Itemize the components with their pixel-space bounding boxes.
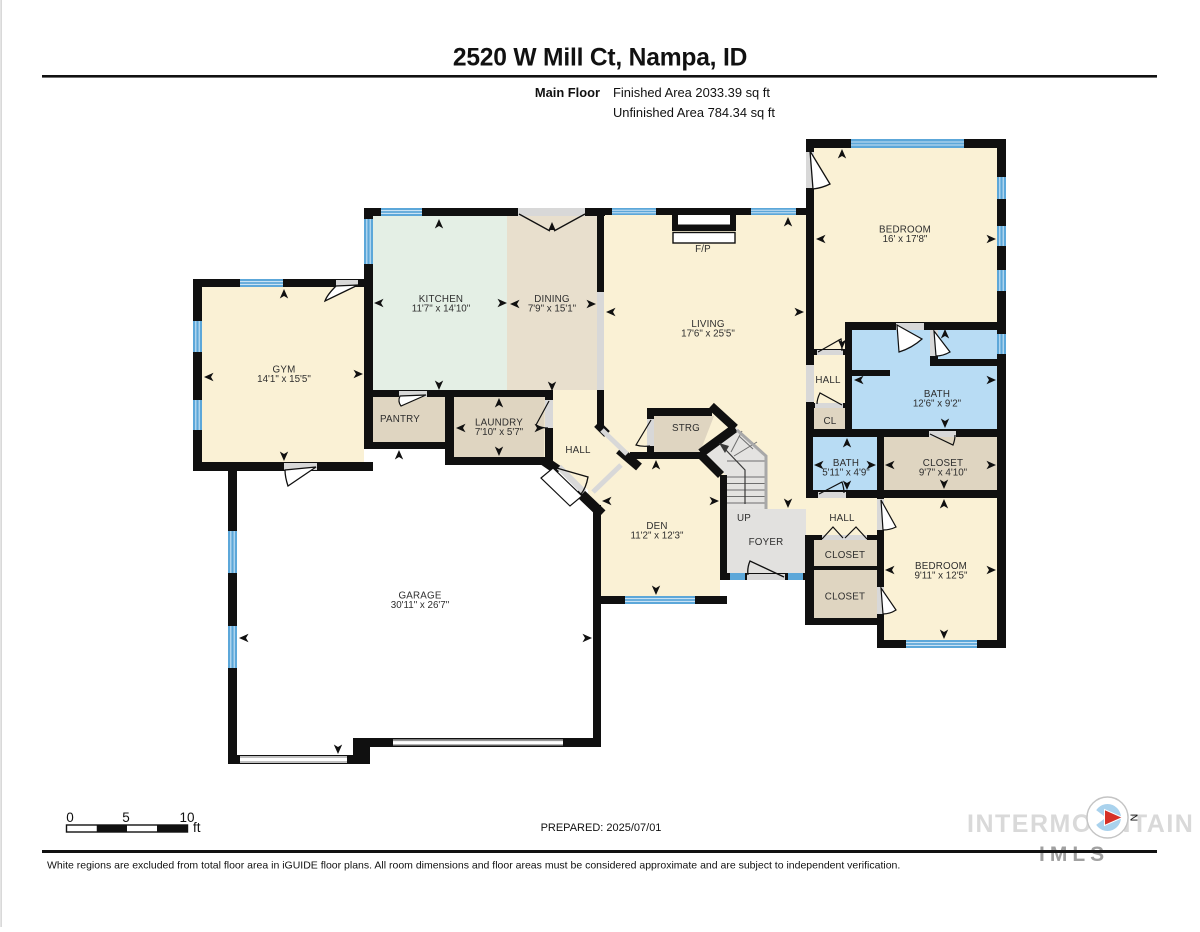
svg-text:Unfinished Area 784.34 sq ft: Unfinished Area 784.34 sq ft xyxy=(613,105,775,120)
svg-text:HALL: HALL xyxy=(829,513,855,524)
svg-text:2520 W Mill Ct, Nampa, ID: 2520 W Mill Ct, Nampa, ID xyxy=(453,45,747,72)
svg-text:UP: UP xyxy=(737,513,751,524)
svg-text:CL: CL xyxy=(824,416,837,427)
svg-text:CLOSET: CLOSET xyxy=(825,592,865,603)
svg-text:0: 0 xyxy=(66,810,74,825)
svg-text:STRG: STRG xyxy=(672,423,700,434)
svg-text:9'11" x 12'5": 9'11" x 12'5" xyxy=(914,571,968,582)
svg-text:FOYER: FOYER xyxy=(749,537,784,548)
svg-text:17'6" x 25'5": 17'6" x 25'5" xyxy=(681,329,735,340)
svg-text:Finished Area 2033.39 sq ft: Finished Area 2033.39 sq ft xyxy=(613,85,770,100)
svg-text:16' x 17'8": 16' x 17'8" xyxy=(883,234,928,245)
svg-text:IMLS: IMLS xyxy=(1039,843,1109,866)
svg-text:5: 5 xyxy=(122,810,130,825)
svg-text:30'11" x 26'7": 30'11" x 26'7" xyxy=(391,600,450,611)
svg-text:Main Floor: Main Floor xyxy=(535,85,600,100)
svg-text:PANTRY: PANTRY xyxy=(380,414,420,425)
svg-text:7'10" x 5'7": 7'10" x 5'7" xyxy=(475,427,524,438)
svg-text:9'7" x 4'10": 9'7" x 4'10" xyxy=(919,468,968,479)
svg-text:11'2" x 12'3": 11'2" x 12'3" xyxy=(630,531,684,542)
svg-text:HALL: HALL xyxy=(565,445,591,456)
svg-text:5'11" x 4'9": 5'11" x 4'9" xyxy=(822,468,870,479)
svg-text:12'6" x 9'2": 12'6" x 9'2" xyxy=(913,399,962,410)
svg-text:HALL: HALL xyxy=(815,375,841,386)
svg-text:N: N xyxy=(1128,814,1140,822)
svg-text:14'1" x 15'5": 14'1" x 15'5" xyxy=(257,374,311,385)
svg-text:White regions are excluded fro: White regions are excluded from total fl… xyxy=(47,860,900,872)
svg-text:PREPARED: 2025/07/01: PREPARED: 2025/07/01 xyxy=(541,822,662,834)
svg-text:F/P: F/P xyxy=(695,244,711,255)
svg-text:INTERMOUNTAIN: INTERMOUNTAIN xyxy=(967,810,1194,838)
svg-text:CLOSET: CLOSET xyxy=(825,550,865,561)
svg-text:ft: ft xyxy=(193,820,201,835)
svg-text:11'7" x 14'10": 11'7" x 14'10" xyxy=(412,304,471,315)
svg-text:7'9" x 15'1": 7'9" x 15'1" xyxy=(528,304,577,315)
